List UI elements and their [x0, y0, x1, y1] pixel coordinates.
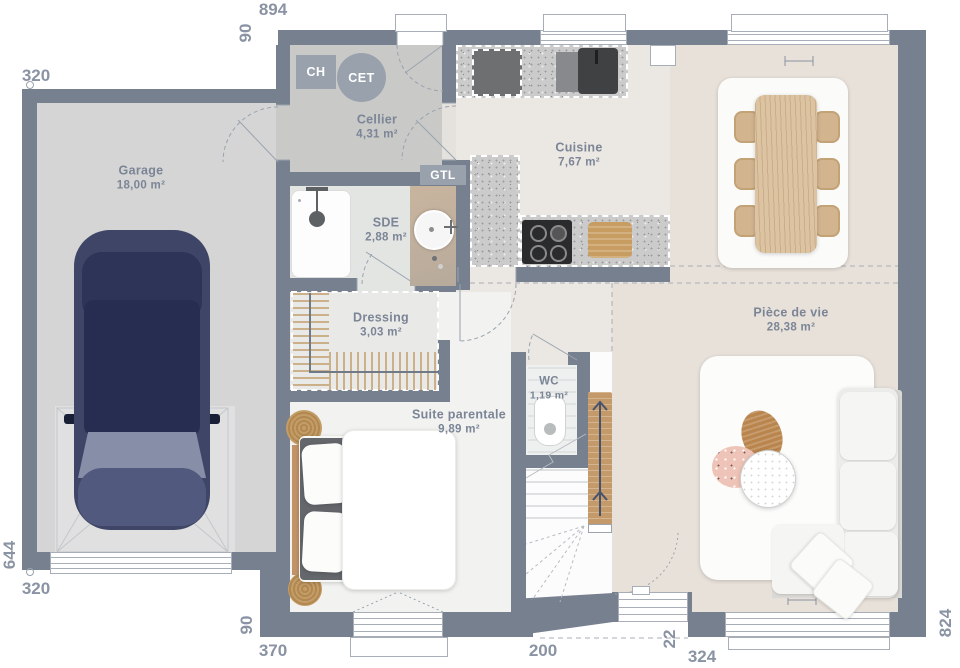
room-name: Cuisine: [555, 139, 602, 155]
dim-living-width: 324: [688, 647, 716, 667]
dim-top-width: 894: [259, 0, 287, 20]
dressing-label: Dressing 3,03 m²: [353, 309, 409, 340]
dim-bottom-left-offset: 90: [237, 616, 257, 635]
dim-top-left-offset: 90: [236, 24, 256, 43]
piece-de-vie-label: Pièce de vie 28,38 m²: [753, 304, 828, 335]
room-name: Dressing: [353, 309, 409, 325]
room-name: Cellier: [356, 111, 398, 127]
suite-parentale-label: Suite parentale 9,89 m²: [412, 406, 506, 437]
cellier-label: Cellier 4,31 m²: [356, 111, 398, 142]
dim-garage-width-bottom: 320: [22, 579, 50, 599]
room-area: 2,88 m²: [365, 231, 407, 246]
dim-left-height: 644: [0, 541, 20, 569]
room-name: SDE: [365, 214, 407, 230]
car-top-view: [64, 230, 220, 530]
room-area: 1,19 m²: [530, 390, 568, 404]
dim-garage-width-top: 320: [22, 66, 50, 86]
room-name: Suite parentale: [412, 406, 506, 422]
room-area: 3,03 m²: [353, 326, 409, 341]
room-name: Garage: [117, 162, 165, 178]
room-name: Pièce de vie: [753, 304, 828, 320]
dim-stair-width: 200: [529, 641, 557, 661]
room-area: 4,31 m²: [356, 128, 398, 143]
dim-recess-depth: 22: [660, 630, 680, 649]
room-area: 7,67 m²: [555, 156, 602, 171]
cuisine-label: Cuisine 7,67 m²: [555, 139, 602, 170]
sde-label: SDE 2,88 m²: [365, 214, 407, 245]
room-area: 9,89 m²: [412, 423, 506, 438]
room-area: 18,00 m²: [117, 179, 165, 194]
floor-plan: CH CET GTL: [0, 0, 960, 668]
room-name: WC: [530, 375, 568, 390]
dim-bedroom-width: 370: [259, 641, 287, 661]
garage-label: Garage 18,00 m²: [117, 162, 165, 193]
wc-label: WC 1,19 m²: [530, 375, 568, 404]
room-area: 28,38 m²: [753, 321, 828, 336]
dim-right-height: 824: [936, 609, 956, 637]
